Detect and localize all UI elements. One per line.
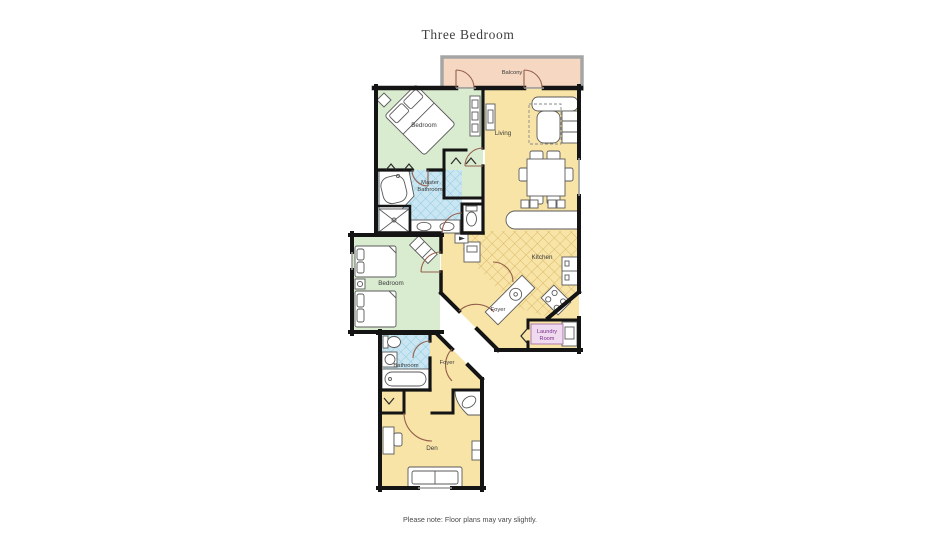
nightstand-icon bbox=[355, 279, 365, 289]
dining-table-icon bbox=[519, 151, 573, 204]
counter-icon bbox=[506, 211, 579, 229]
washer-icon bbox=[562, 322, 577, 346]
cabinet-icon bbox=[464, 242, 480, 262]
den-label: Den bbox=[426, 445, 438, 452]
living-label: Living bbox=[495, 130, 512, 137]
laundry-label-1: Laundry bbox=[537, 329, 557, 335]
foyer-lower-label: Foyer bbox=[440, 360, 455, 366]
sofa-icon bbox=[408, 467, 462, 488]
bedroom-top-label: Bedroom bbox=[411, 122, 437, 129]
tv-icon bbox=[486, 104, 495, 130]
toilet-icon bbox=[383, 336, 401, 348]
bedroom-mid-label: Bedroom bbox=[378, 280, 404, 287]
balcony: Balcony bbox=[442, 57, 582, 89]
foyer-upper-label: Foyer bbox=[491, 307, 506, 313]
dresser-icon bbox=[470, 96, 480, 136]
shower-icon bbox=[379, 209, 409, 232]
master-bathroom-label-1: Master bbox=[421, 180, 439, 186]
tub-icon bbox=[382, 369, 429, 389]
toilet-icon bbox=[466, 206, 477, 226]
bed-icon bbox=[355, 291, 396, 327]
bed-icon bbox=[355, 246, 396, 277]
master-bathroom-label-2: Bathroom bbox=[417, 187, 442, 193]
laundry-label-2: Room bbox=[540, 336, 555, 342]
balcony-label: Balcony bbox=[502, 70, 523, 76]
refrigerator-icon bbox=[562, 257, 578, 285]
bathroom-label: Bathroom bbox=[393, 363, 418, 369]
vanity-icon bbox=[411, 220, 460, 233]
page-title: Three Bedroom bbox=[422, 27, 515, 42]
footer-note: Please note: Floor plans may vary slight… bbox=[403, 515, 537, 524]
entry-fixture-icon bbox=[455, 234, 468, 243]
floor-plan-svg: Three Bedroom Balcony bbox=[0, 0, 940, 553]
kitchen-label: Kitchen bbox=[531, 254, 553, 261]
